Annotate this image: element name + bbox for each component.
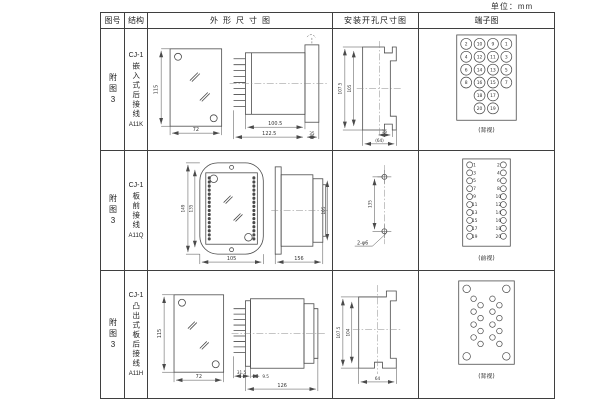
front-view-lines [200,163,263,254]
svg-text:6: 6 [465,67,468,73]
row2-outline-drawing: 149 135 105 156 105 [148,151,333,271]
row1-figure-label: 附图3 [109,73,117,107]
drawing-table: 图号 结构 外形尺寸图 安装开孔尺寸图 端子图 附图3 CJ-1 嵌入式后接线 … [100,12,555,399]
row2-structure-label: 板前接线 [132,192,140,230]
svg-text:19: 19 [472,234,478,240]
dim-label: 115 [154,85,160,94]
dimension-lines: 107.5 105 16 (64) [337,47,396,146]
view-label: (前视) [478,254,495,262]
dim-label: 122.5 [262,131,276,137]
dim-label: 64 [375,376,381,381]
svg-text:14: 14 [496,210,502,216]
svg-text:8: 8 [465,80,468,86]
row3-structure-cell: CJ-1 凸出式板后接线 A11H [125,271,148,398]
unit-label: 单位：mm [468,1,556,12]
row1-mounting-drawing: 107.5 105 16 (64) [333,29,419,151]
dim-label: 16 [382,129,388,134]
row3-code-label: A11H [129,371,144,377]
svg-text:19: 19 [490,106,496,112]
svg-text:10: 10 [496,194,502,200]
row3-model-label: CJ-1 [129,292,144,299]
terminal-circles: 1234567891011121314151617181920 [467,162,507,240]
svg-text:4: 4 [465,54,468,60]
dim-label: 72 [193,127,199,133]
dimension-lines: 115 72 31.5 9.5 126 [157,295,318,391]
svg-text:16: 16 [477,80,483,86]
dim-label: 135 [188,204,193,212]
view-label: (背视) [478,126,495,134]
svg-text:17: 17 [490,93,496,99]
hole-spec-label: 2-φ6 [357,241,368,247]
svg-text:13: 13 [472,210,478,216]
row1-structure-cell: CJ-1 嵌入式后接线 A11K [125,29,148,151]
side-view-lines [232,299,325,368]
header-mounting: 安装开孔尺寸图 [333,13,419,29]
header-terminal: 端子图 [419,13,554,29]
svg-text:18: 18 [477,93,483,99]
row3-outline-drawing: 115 72 31.5 9.5 126 [148,271,333,398]
svg-text:16: 16 [496,218,502,224]
dim-label: 72 [196,374,202,380]
svg-text:18: 18 [496,226,502,232]
dimension-lines: 115 72 100.5 122.5 35 [154,49,319,139]
row1-model-label: CJ-1 [129,52,144,59]
svg-text:5: 5 [473,178,476,184]
row2-model-label: CJ-1 [129,182,144,189]
dim-label: 105 [347,84,352,92]
svg-text:20: 20 [477,106,483,112]
svg-text:3: 3 [505,54,508,60]
svg-text:4: 4 [497,170,500,176]
row3-figure-cell: 附图3 [101,271,125,398]
side-view-lines [230,35,327,123]
row2-code-label: A11Q [129,233,144,239]
row3-terminal-drawing: (背视) [419,271,554,398]
row3-mounting-drawing: 107.5 104 64 [333,271,419,398]
dim-label: 105 [227,256,236,262]
svg-text:7: 7 [505,80,508,86]
row1-terminal-drawing: 2109141211361413581615718172019 (背视) [419,29,554,151]
front-view-lines [170,49,222,126]
row3-figure-label: 附图3 [109,318,117,352]
row1-figure-cell: 附图3 [101,29,125,151]
svg-text:9: 9 [473,194,476,200]
dim-label: 105 [321,206,326,214]
cutout-lines [353,285,402,374]
row3-structure-label: 凸出式板后接线 [132,302,140,369]
svg-text:11: 11 [472,202,478,208]
dim-label: 104 [345,328,350,336]
svg-text:15: 15 [472,218,478,224]
svg-text:11: 11 [490,54,496,60]
header-structure: 结构 [125,13,148,29]
cutout-lines [357,41,402,136]
header-figure: 图号 [101,13,125,29]
row1-structure-label: 嵌入式后接线 [132,62,140,119]
dim-label: 100.5 [268,121,282,127]
dim-label: 107.5 [337,82,342,94]
svg-text:8: 8 [497,186,500,192]
svg-text:12: 12 [477,54,483,60]
row2-terminal-drawing: 1234567891011121314151617181920 (前视) [419,151,554,271]
svg-text:1: 1 [505,42,508,48]
dimension-lines: 135 2-φ6 [355,177,387,247]
svg-text:12: 12 [496,202,502,208]
dim-label: 107.5 [336,326,341,338]
svg-text:3: 3 [473,170,476,176]
svg-text:10: 10 [477,42,483,48]
dim-label: 115 [157,329,163,338]
dim-label: 126 [277,383,286,389]
svg-text:2: 2 [497,162,500,168]
svg-text:20: 20 [496,234,502,240]
dim-label: 35 [309,131,315,136]
row2-structure-cell: CJ-1 板前接线 A11Q [125,151,148,271]
dim-label: 156 [294,256,303,262]
svg-text:17: 17 [472,226,478,232]
row1-outline-drawing: 115 72 100.5 122.5 35 [148,29,333,151]
row2-figure-cell: 附图3 [101,151,125,271]
view-label: (背视) [478,372,495,380]
front-view-lines [174,295,224,372]
dim-label: 31.5 [237,370,247,375]
svg-text:5: 5 [505,67,508,73]
dimension-lines: 107.5 104 64 [336,297,396,384]
svg-text:6: 6 [497,178,500,184]
svg-text:2: 2 [465,42,468,48]
header-outline: 外形尺寸图 [148,13,333,29]
svg-text:1: 1 [473,162,476,168]
svg-text:7: 7 [473,186,476,192]
svg-text:15: 15 [490,80,496,86]
row1-code-label: A11K [129,122,143,128]
dim-label: 149 [180,204,185,212]
dim-label: (64) [375,138,384,143]
terminal-block-outline [459,281,515,364]
svg-text:14: 14 [477,67,483,73]
row2-figure-label: 附图3 [109,194,117,228]
dim-label: 135 [368,200,373,208]
row2-mounting-drawing: 135 2-φ6 [333,151,419,271]
terminal-circles: 2109141211361413581615718172019 [461,38,512,113]
svg-text:13: 13 [490,67,496,73]
svg-text:9: 9 [492,42,495,48]
terminal-circles [463,285,510,360]
dim-label: 9.5 [262,374,269,379]
